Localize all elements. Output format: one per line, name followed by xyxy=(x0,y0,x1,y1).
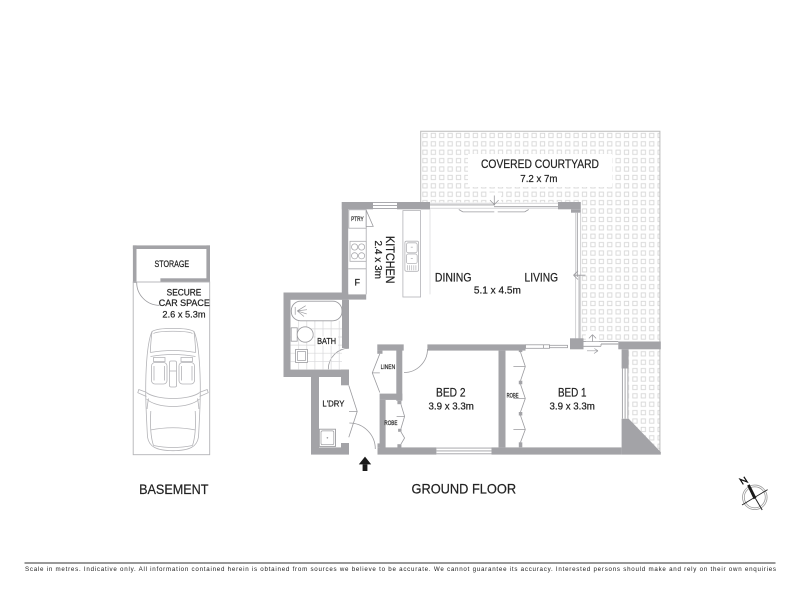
svg-text:F: F xyxy=(354,278,360,288)
svg-text:GROUND FLOOR: GROUND FLOOR xyxy=(412,482,517,497)
svg-text:LINEN: LINEN xyxy=(381,364,396,371)
svg-text:ROBE: ROBE xyxy=(507,393,519,400)
svg-text:PTRY: PTRY xyxy=(351,216,364,223)
svg-text:ROBE: ROBE xyxy=(384,420,397,427)
svg-text:BED 1: BED 1 xyxy=(558,385,587,399)
svg-text:2.6 x 5.3m: 2.6 x 5.3m xyxy=(162,309,205,319)
svg-text:2.4 x 3m: 2.4 x 3m xyxy=(372,241,383,280)
svg-text:LIVING: LIVING xyxy=(525,270,559,284)
svg-text:BASEMENT: BASEMENT xyxy=(139,482,208,497)
svg-text:3.9 x 3.3m: 3.9 x 3.3m xyxy=(549,401,595,412)
svg-text:COVERED COURTYARD: COVERED COURTYARD xyxy=(481,157,599,171)
svg-text:DINING: DINING xyxy=(435,270,472,284)
svg-text:L'DRY: L'DRY xyxy=(322,398,344,408)
svg-text:SECURE: SECURE xyxy=(167,287,202,297)
svg-text:3.9 x 3.3m: 3.9 x 3.3m xyxy=(428,401,474,412)
svg-text:Scale in metres. Indicative on: Scale in metres. Indicative only. All in… xyxy=(25,566,776,573)
svg-text:5.1 x 4.5m: 5.1 x 4.5m xyxy=(474,286,521,297)
svg-text:CAR SPACE: CAR SPACE xyxy=(159,298,210,308)
svg-text:BED 2: BED 2 xyxy=(436,385,466,399)
svg-text:7.2 x 7m: 7.2 x 7m xyxy=(520,174,557,185)
svg-text:KITCHEN: KITCHEN xyxy=(383,236,397,284)
svg-text:STORAGE: STORAGE xyxy=(155,259,190,269)
svg-text:BATH: BATH xyxy=(317,337,336,346)
